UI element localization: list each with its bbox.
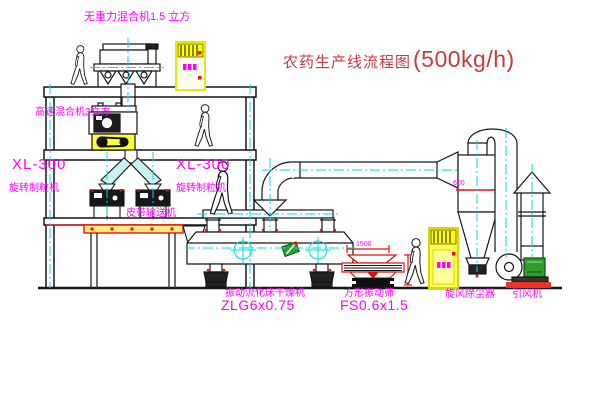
dim-sieve-1500: 1500 xyxy=(356,241,372,248)
label-sieve-model: FS0.6x1.5 xyxy=(340,298,408,313)
fan-base xyxy=(506,282,551,288)
label-granulator-center-name: 旋转制粒机 xyxy=(176,184,226,195)
label-granulator-center-model: XL-300 xyxy=(176,157,230,173)
label-cyclone: 旋风除尘器 xyxy=(445,290,495,301)
cabinet1-indicator-light xyxy=(198,51,202,55)
sieve-base xyxy=(352,278,394,288)
label-gravity-free-mixer: 无重力混合机1.5 立方 xyxy=(84,12,190,24)
label-granulator-left-name: 旋转制粒机 xyxy=(9,184,59,195)
exhaust-duct xyxy=(254,152,458,216)
cabinet2-indicator-light xyxy=(452,252,456,256)
belt-conveyor xyxy=(84,225,183,288)
roof-slab xyxy=(44,87,256,97)
dryer-mount-left xyxy=(204,264,228,287)
control-cabinet-1 xyxy=(176,42,205,90)
person-figure-roof xyxy=(71,46,87,85)
diagram-title: 农药生产线流程图 (500kg/h) xyxy=(283,46,515,73)
fan-motor xyxy=(524,258,545,277)
high-speed-mixer xyxy=(89,97,137,150)
diagram-title-capacity: (500kg/h) xyxy=(413,46,515,73)
label-induced-draft-fan: 引风机 xyxy=(512,290,542,301)
control-cabinet-2 xyxy=(429,228,458,288)
diagram-title-cn: 农药生产线流程图 xyxy=(283,51,411,72)
label-dryer-model: ZLG6x0.75 xyxy=(221,298,295,313)
dim-cyclone-600: 600 xyxy=(453,180,465,187)
dryer-mount-right xyxy=(310,264,334,287)
diagram-canvas: 无重力混合机1.5 立方 农药生产线流程图 (500kg/h) 高速混合机3立方… xyxy=(0,0,600,403)
induced-draft-fan-unit xyxy=(496,254,551,288)
label-belt-conveyor: 皮带输送机 xyxy=(126,209,176,220)
label-high-speed-mixer: 高速混合机3立方 xyxy=(35,108,111,119)
label-granulator-left-model: XL-300 xyxy=(12,157,66,173)
person-figure-midfloor xyxy=(195,105,212,147)
